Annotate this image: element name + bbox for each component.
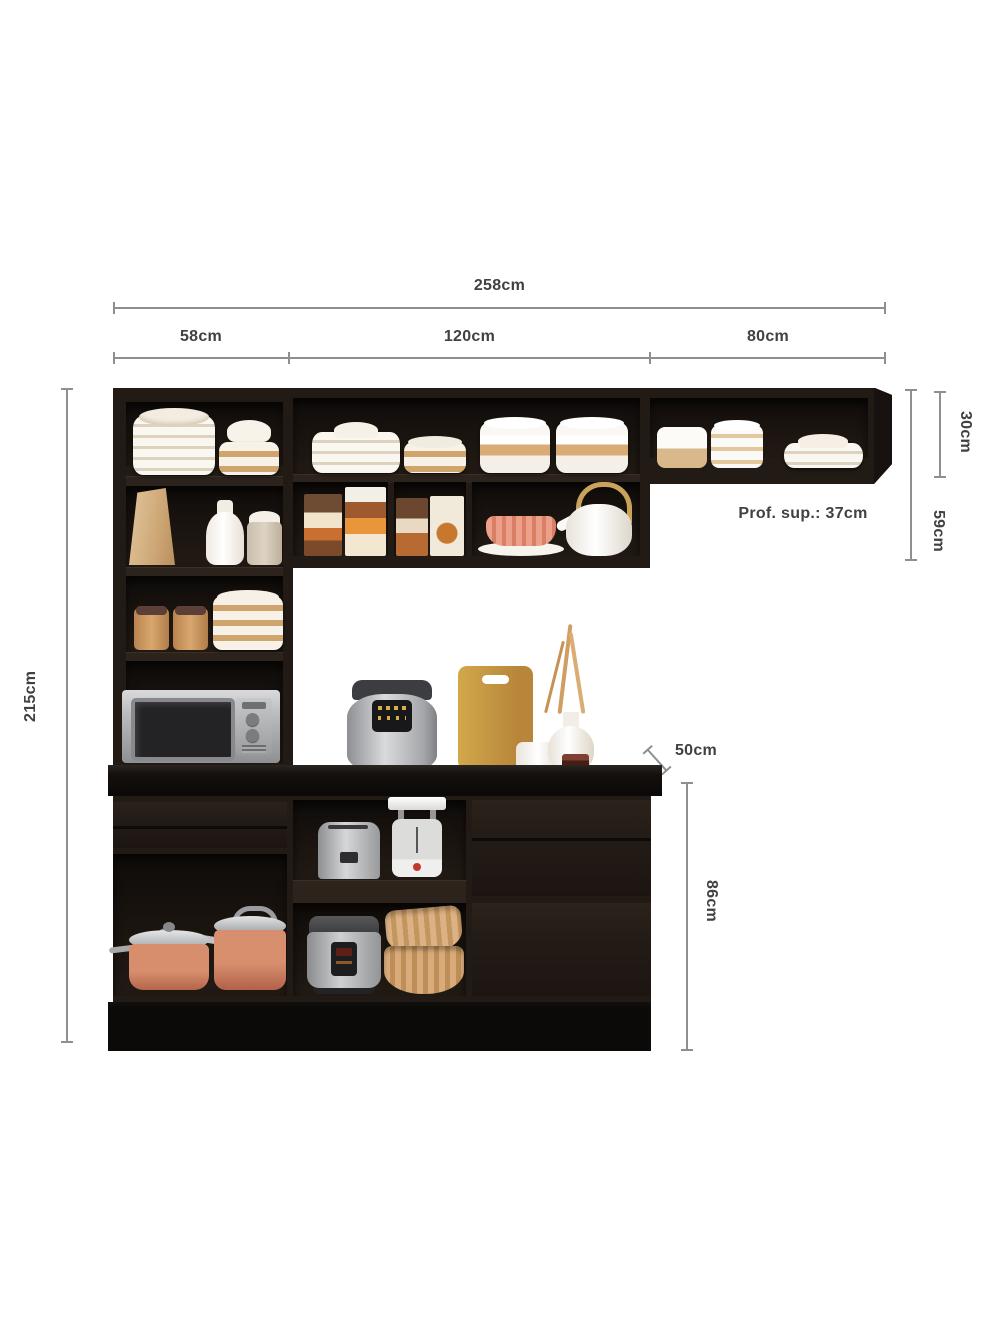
band-bowl-stack-2 bbox=[556, 422, 628, 473]
microwave bbox=[122, 690, 280, 763]
food-boxes-1 bbox=[304, 487, 386, 556]
dim-right-width-label: 80cm bbox=[650, 327, 886, 347]
dim-right-shelf-height-line bbox=[939, 391, 941, 478]
bowl-stack-2 bbox=[404, 442, 466, 473]
base-plinth bbox=[108, 1002, 651, 1051]
teapot bbox=[564, 482, 634, 556]
base-right-drawer-bottom bbox=[472, 903, 651, 996]
dim-middle-width-label: 120cm bbox=[289, 327, 650, 347]
dim-base-height-line bbox=[686, 782, 688, 1051]
right-bowl-stack-1 bbox=[657, 427, 707, 468]
dim-right-shelf-height-label: 30cm bbox=[955, 407, 975, 457]
dim-left-width-label: 58cm bbox=[113, 327, 289, 347]
wooden-bowls bbox=[384, 908, 464, 994]
copper-stockpot bbox=[212, 906, 288, 990]
storage-jars bbox=[134, 606, 209, 650]
right-bowl-stack-2 bbox=[711, 425, 763, 468]
dim-upper-cabinet-height-line bbox=[910, 389, 912, 561]
dim-total-height-label: 215cm bbox=[21, 672, 41, 722]
plate-stack-2 bbox=[312, 432, 400, 473]
band-bowl-stack-1 bbox=[480, 422, 550, 473]
dim-sections-line bbox=[113, 357, 886, 359]
copper-saucepan bbox=[123, 920, 219, 990]
microwave-door bbox=[131, 698, 235, 761]
food-boxes-2 bbox=[396, 496, 464, 556]
air-fryer bbox=[347, 680, 437, 772]
bowl-stack bbox=[219, 420, 279, 475]
dim-sections-tick-2 bbox=[649, 352, 651, 364]
milk-bottle bbox=[206, 500, 244, 565]
dried-stems bbox=[545, 624, 597, 718]
dim-countertop-depth-label: 50cm bbox=[668, 741, 724, 761]
striped-bowl-stack bbox=[213, 596, 283, 650]
air-fryer-display bbox=[372, 700, 412, 732]
base-left-drawer bbox=[113, 802, 287, 848]
upper-shelf-depth-label: Prof. sup.: 37cm bbox=[723, 504, 883, 524]
base-right-drawer-top bbox=[472, 800, 651, 896]
dim-total-width-line bbox=[113, 307, 886, 309]
paper-bags bbox=[129, 488, 209, 565]
countertop bbox=[108, 765, 662, 796]
toaster bbox=[318, 822, 380, 879]
dim-upper-cabinet-height-label: 59cm bbox=[928, 506, 948, 556]
dim-total-width-label: 258cm bbox=[113, 276, 886, 296]
microwave-panel bbox=[236, 698, 272, 755]
dim-base-height-label: 86cm bbox=[701, 876, 721, 926]
coral-bowl-on-plate bbox=[478, 516, 564, 556]
right-plate-stack bbox=[784, 443, 863, 468]
multicooker bbox=[307, 916, 381, 994]
kitchen-scale bbox=[388, 797, 446, 879]
dim-sections-tick-1 bbox=[288, 352, 290, 364]
canister bbox=[247, 511, 282, 565]
plate-stack bbox=[133, 416, 215, 475]
product-dimension-diagram: 258cm 58cm 120cm 80cm 215cm 59cm 30cm Pr… bbox=[0, 0, 1000, 1333]
dim-total-height-line bbox=[66, 388, 68, 1043]
